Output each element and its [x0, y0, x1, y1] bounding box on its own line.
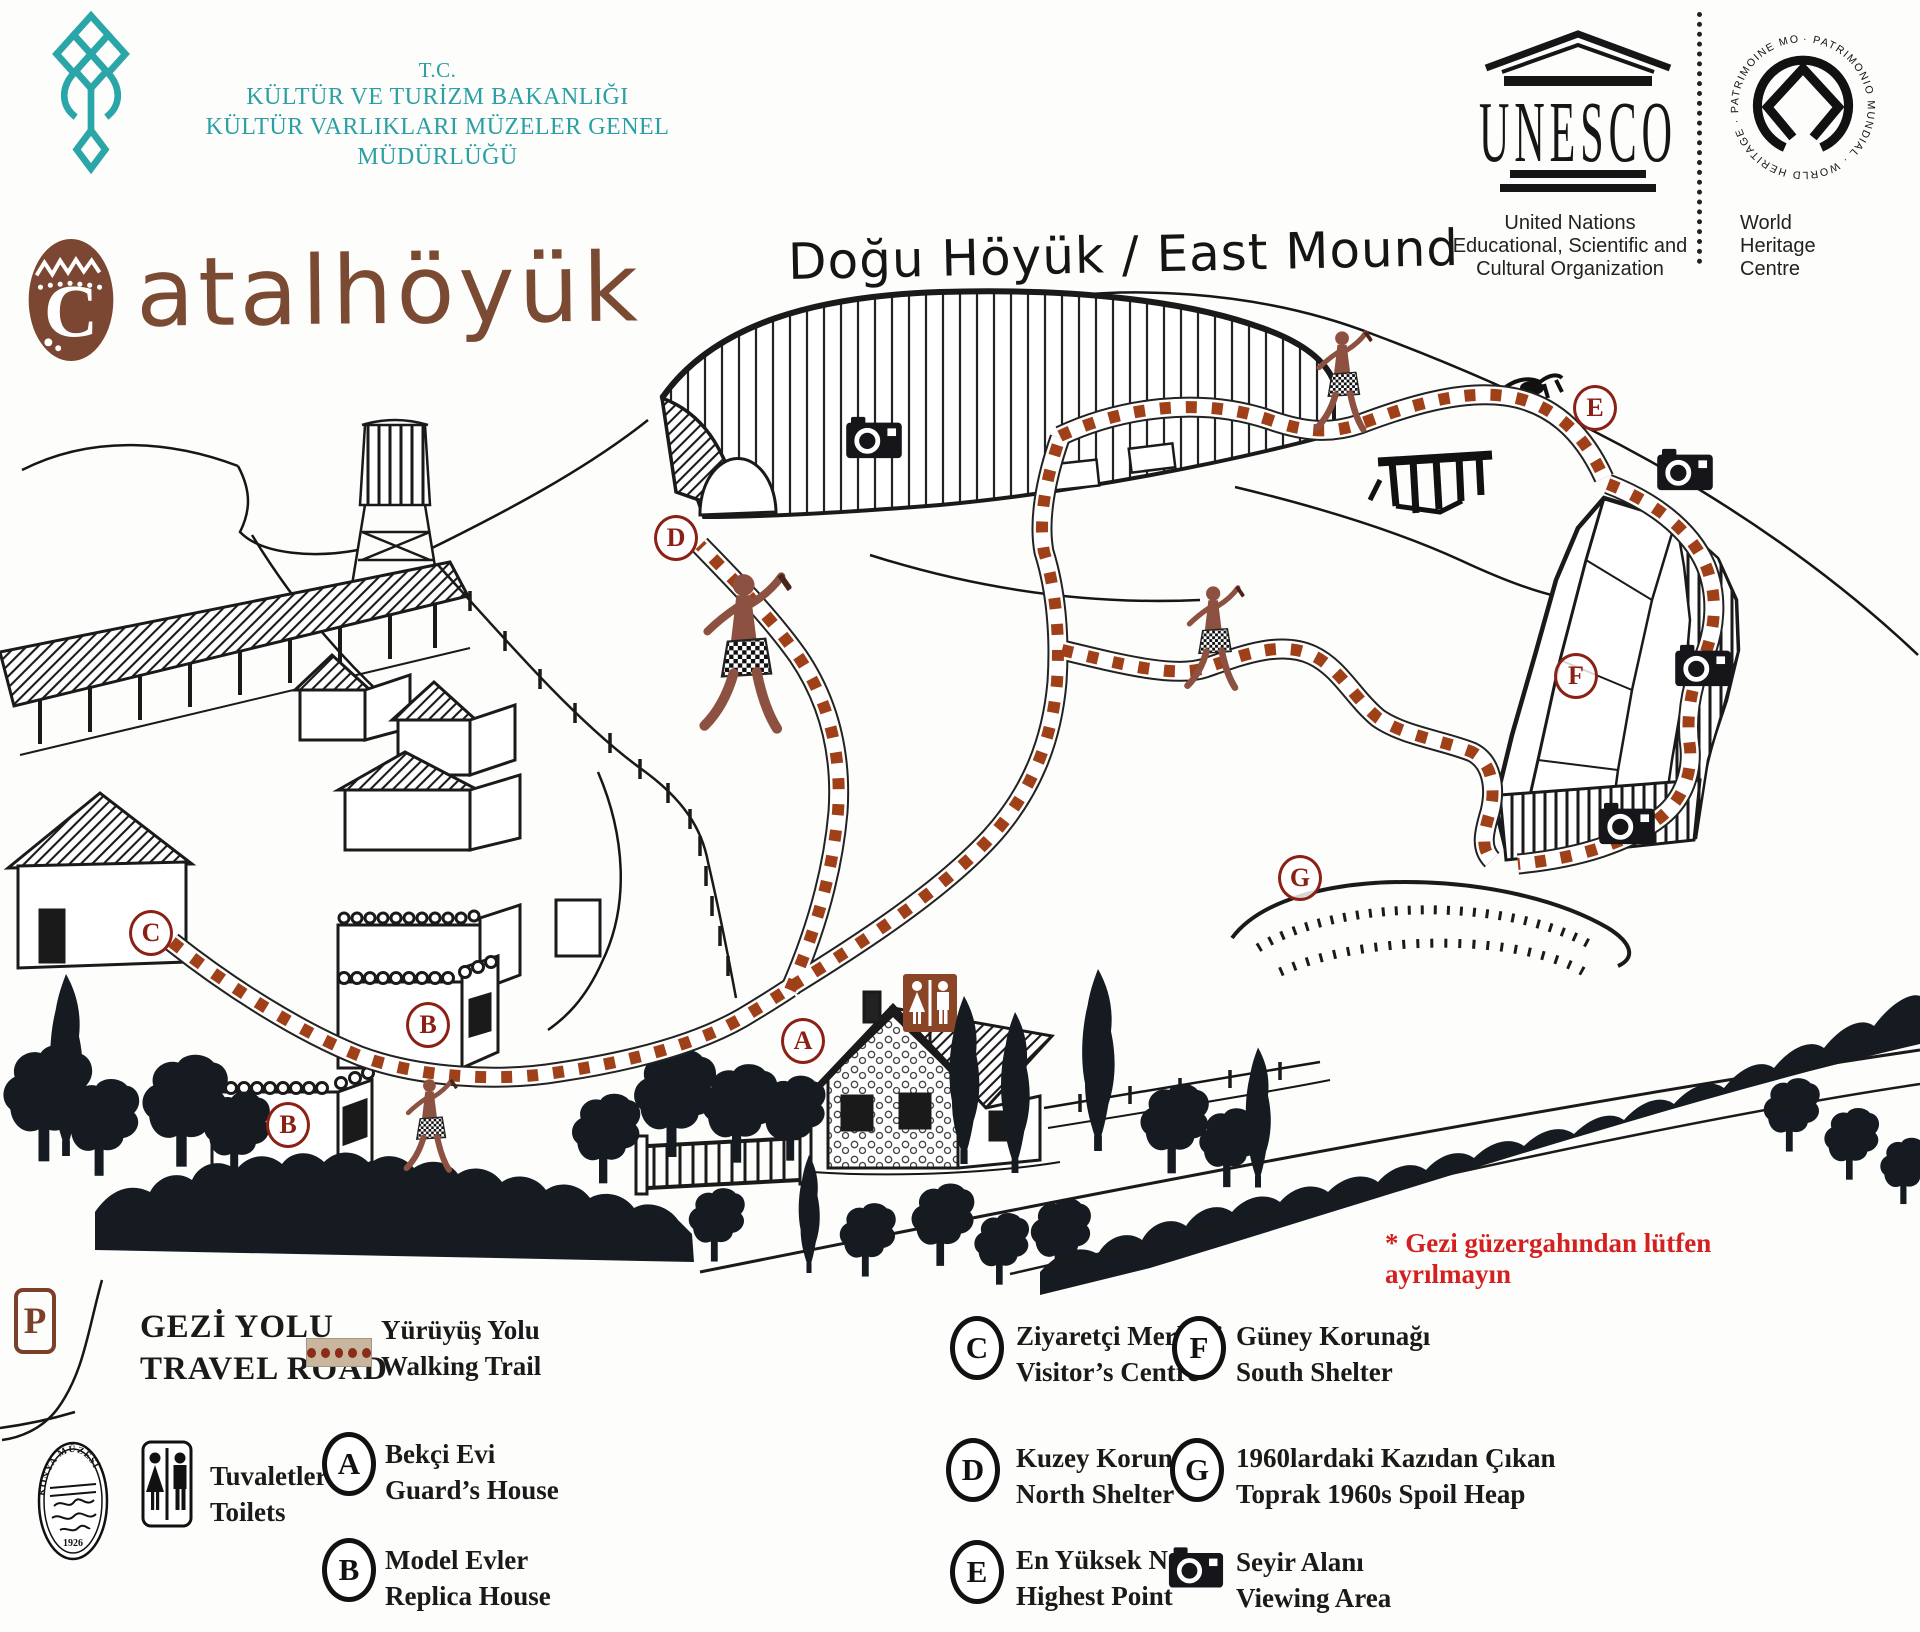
camera-icon	[1675, 645, 1731, 686]
visitor-centre-buildings	[0, 562, 600, 990]
figure-replica-area	[407, 1079, 457, 1170]
map-marker-c: C	[129, 910, 173, 956]
catalhoyuk-seal-logo: C	[26, 236, 116, 364]
map-marker-a: A	[781, 1018, 825, 1064]
konya-museum-seal: KONYA MÜZESİ 1926	[36, 1440, 110, 1562]
legend-symbol-a: A	[322, 1432, 376, 1496]
world-heritage-caption: World Heritage Centre	[1740, 212, 1910, 281]
legend-viewing-area: Seyir Alanı Viewing Area	[1236, 1544, 1391, 1616]
catalhoyuk-site-map: T.C. KÜLTÜR VE TURİZM BAKANLIĞI KÜLTÜR V…	[0, 0, 1920, 1632]
seal-year: 1926	[63, 1538, 83, 1549]
ministry-logo	[48, 8, 134, 184]
trail-warning-text: * Gezi güzergahından lütfen ayrılmayın	[1385, 1228, 1825, 1290]
legend-replica-house: Model Evler Replica House	[385, 1542, 551, 1614]
ministry-line-1: T.C.	[150, 58, 725, 82]
map-marker-g: G	[1278, 855, 1322, 901]
legend-camera-icon	[1168, 1544, 1224, 1590]
legend-symbol-c: C	[950, 1316, 1004, 1380]
parking-sign: P	[14, 1288, 56, 1354]
toilets-icon	[141, 1440, 193, 1528]
toilets-sign	[903, 974, 957, 1032]
world-heritage-emblem: · PATRIMONIO MUNDIAL · WORLD HERITAGE · …	[1722, 26, 1884, 188]
world-heritage-ring-text: · PATRIMONIO MUNDIAL · WORLD HERITAGE · …	[1722, 26, 1877, 181]
unesco-caption: United Nations Educational, Scientific a…	[1420, 212, 1720, 281]
map-marker-b2: B	[266, 1102, 310, 1148]
legend-symbol-f: F	[1172, 1316, 1226, 1380]
header-divider	[1697, 12, 1702, 264]
walking-trail-icon	[306, 1338, 372, 1367]
map-marker-b1: B	[406, 1002, 450, 1048]
map-marker-f: F	[1554, 653, 1598, 699]
legend-symbol-g: G	[1170, 1438, 1224, 1502]
camera-icon	[1657, 449, 1713, 490]
legend-guard-house: Bekçi Evi Guard’s House	[385, 1436, 559, 1508]
legend-symbol-e: E	[950, 1540, 1004, 1604]
svg-text:· PATRIMONIO MUNDIAL · WORLD H: · PATRIMONIO MUNDIAL · WORLD HERITAGE · …	[1722, 26, 1877, 181]
legend-toilets: Tuvaletler Toilets	[210, 1458, 328, 1530]
page-title: atalhöyük	[135, 233, 642, 348]
ministry-line-3: KÜLTÜR VARLIKLARI MÜZELER GENEL MÜDÜRLÜĞ…	[150, 112, 725, 172]
excavation-sketch	[1370, 455, 1492, 513]
ministry-line-2: KÜLTÜR VE TURİZM BAKANLIĞI	[150, 82, 725, 112]
legend-south-shelter: Güney Korunağı South Shelter	[1236, 1318, 1430, 1390]
water-tower	[352, 420, 438, 585]
unesco-wordmark: UNESCO	[1479, 83, 1677, 180]
legend-symbol-d: D	[946, 1438, 1000, 1502]
camera-icon	[846, 417, 902, 458]
legend-spoil-heap: 1960lardaki Kazıdan Çıkan Toprak 1960s S…	[1236, 1440, 1556, 1512]
legend-walking-trail: Yürüyüş Yolu Walking Trail	[381, 1312, 541, 1384]
figure-west	[705, 574, 791, 728]
camera-icon	[1599, 803, 1655, 844]
unesco-logo: UNESCO	[1478, 28, 1678, 200]
seal-letter: C	[44, 270, 98, 353]
ministry-title: T.C. KÜLTÜR VE TURİZM BAKANLIĞI KÜLTÜR V…	[150, 58, 725, 172]
legend-symbol-b: B	[322, 1538, 376, 1602]
map-marker-d: D	[654, 515, 698, 561]
map-marker-e: E	[1573, 385, 1617, 431]
